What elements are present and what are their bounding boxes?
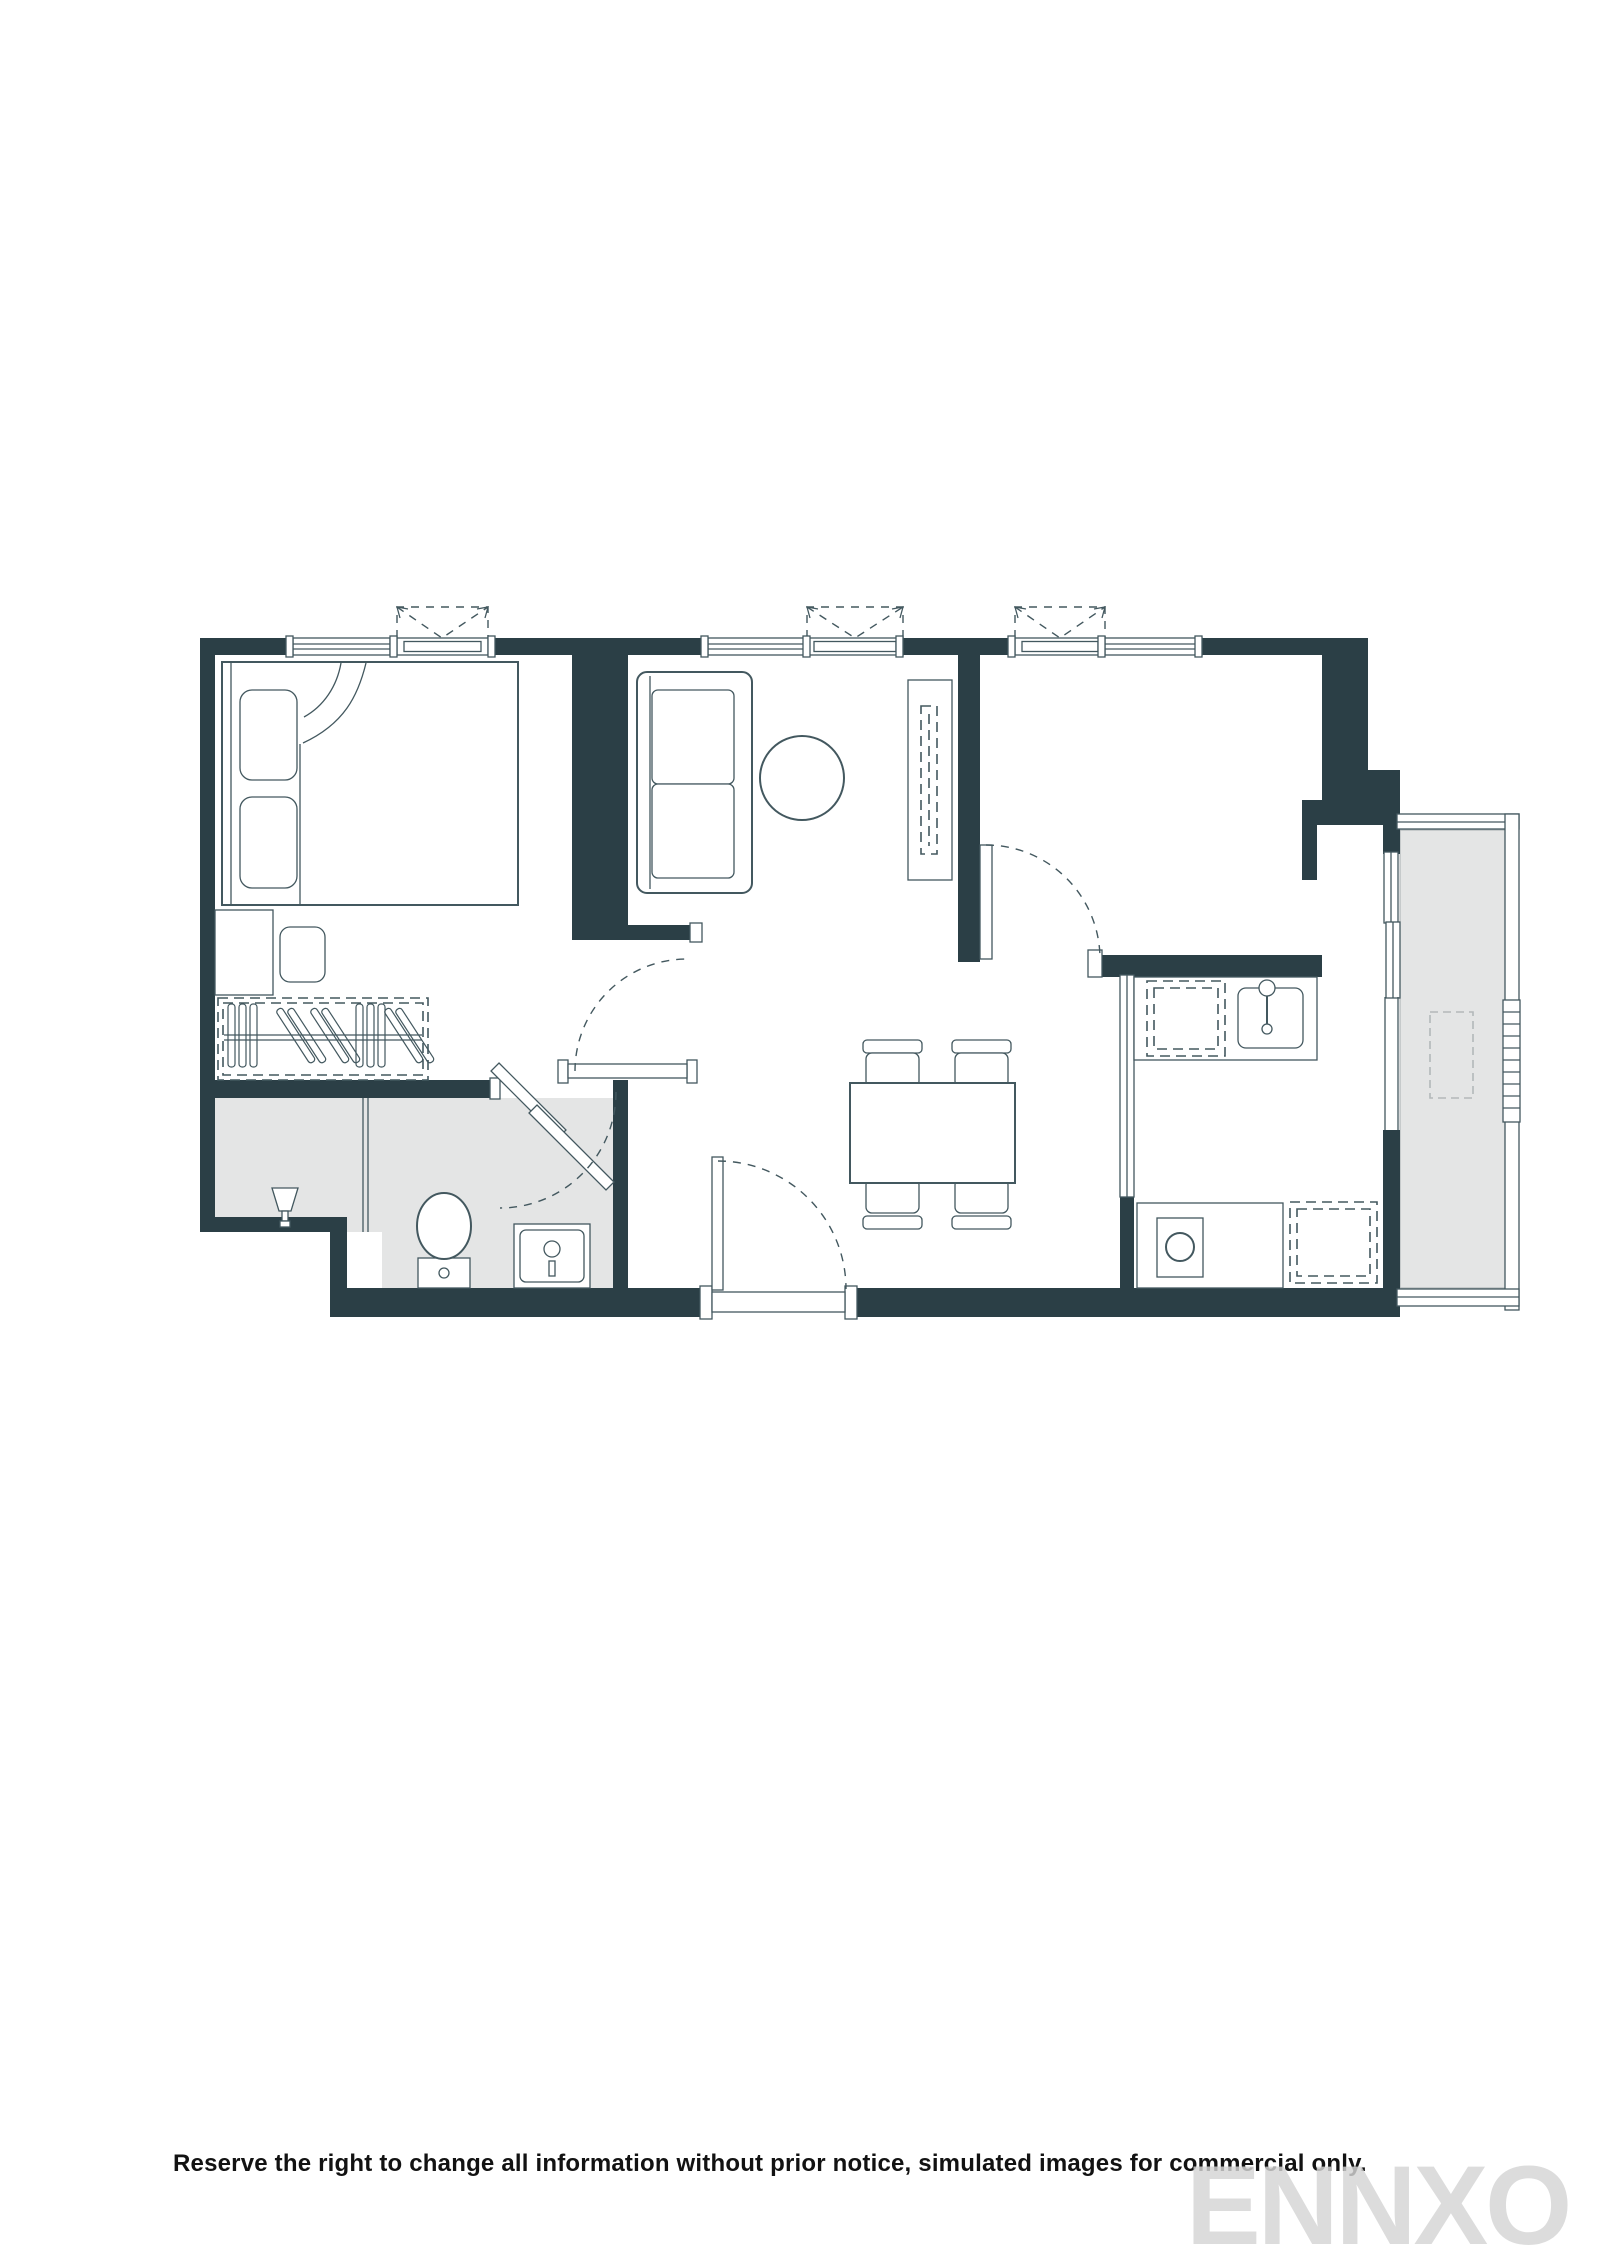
- window-opening-symbol: [1015, 607, 1105, 638]
- entry-hall: [700, 1157, 857, 1319]
- floorplan-page: ENNXO Reserve the right to change all in…: [0, 0, 1600, 2263]
- wall-bathroom-top: [215, 1080, 497, 1098]
- jamb: [701, 636, 708, 657]
- watermark: ENNXO: [1186, 2150, 1569, 2262]
- wall-segment: [488, 638, 708, 655]
- window-sash: [1022, 642, 1098, 652]
- wall-bottom-left: [330, 1288, 700, 1317]
- window-frame: [708, 638, 807, 655]
- door-threshold: [712, 1292, 845, 1312]
- toilet-tank: [418, 1258, 470, 1288]
- faucet-spout: [1262, 1024, 1272, 1034]
- windows: [286, 607, 1202, 657]
- faucet: [544, 1241, 560, 1257]
- faucet-handle: [549, 1261, 555, 1276]
- door-swing: [575, 959, 687, 1071]
- dining-chair: [952, 1179, 1011, 1229]
- wall-shower-bottom: [200, 1217, 347, 1232]
- chair-seat: [955, 1179, 1008, 1213]
- wall-segment: [1202, 638, 1322, 655]
- refrigerator-space: [1290, 1202, 1377, 1283]
- faucet: [1259, 980, 1275, 996]
- wardrobe-rail: [224, 1035, 422, 1040]
- door-jamb: [558, 1060, 568, 1083]
- jamb: [488, 636, 495, 657]
- sofa: [637, 672, 752, 893]
- dining-chair: [863, 1179, 922, 1229]
- window-opening-symbol: [397, 607, 488, 638]
- wall-living-bedroom2-divider: [958, 655, 980, 962]
- balcony-floor-slab: [1400, 830, 1505, 1288]
- door-jamb: [700, 1286, 712, 1319]
- chair-seat: [866, 1179, 919, 1213]
- kitchen-sink: [1238, 980, 1303, 1048]
- living-room: [637, 672, 952, 893]
- washing-machine: [1157, 1218, 1203, 1277]
- floorplan-drawing: [0, 0, 1600, 2263]
- double-bed: [222, 662, 518, 905]
- wall-kitchen-partition-stub: [1120, 1197, 1134, 1288]
- door-jamb: [687, 1060, 697, 1083]
- sliding-window: [1384, 852, 1400, 1130]
- door-swing: [718, 1161, 846, 1289]
- window-6: [1105, 638, 1202, 655]
- dining-table: [850, 1083, 1015, 1183]
- wall-bathroom-right: [613, 1080, 628, 1288]
- window-sash: [404, 642, 481, 652]
- window-2: [397, 607, 488, 655]
- side-table: [215, 910, 273, 995]
- pillow: [240, 690, 297, 780]
- bedroom-2: [980, 845, 1102, 977]
- toilet-bowl: [417, 1193, 471, 1259]
- wall-bottom-right: [845, 1288, 1400, 1317]
- balcony-floor: [1400, 830, 1505, 1288]
- jamb: [390, 636, 397, 657]
- chair-back: [863, 1216, 922, 1229]
- wall-balcony-beam: [1302, 800, 1400, 825]
- pillow: [240, 797, 297, 888]
- jamb: [286, 636, 293, 657]
- door-leaf: [712, 1157, 723, 1290]
- jamb: [1195, 636, 1202, 657]
- chair-back: [952, 1216, 1011, 1229]
- nightstand: [280, 927, 325, 982]
- door-jamb: [845, 1286, 857, 1319]
- tv-cabinet: [908, 680, 952, 880]
- wall-bedroom-living-divider: [572, 655, 628, 940]
- dining-chair: [863, 1040, 922, 1087]
- kitchen-glass-partition: [1120, 975, 1134, 1197]
- window-frame: [293, 638, 390, 655]
- coffee-table: [760, 736, 844, 820]
- window-opening-symbol: [807, 607, 903, 638]
- sliding-door-opening: [1385, 997, 1398, 1130]
- kitchen: [1120, 975, 1377, 1288]
- wall-left-exterior: [200, 638, 215, 1232]
- jamb: [1098, 636, 1105, 657]
- toilet: [417, 1193, 471, 1288]
- window-3: [708, 638, 807, 655]
- bathroom-sink: [514, 1224, 590, 1288]
- window-sash: [814, 642, 896, 652]
- window-5: [1015, 607, 1105, 655]
- sofa-cushion: [652, 690, 734, 784]
- jamb: [1008, 636, 1015, 657]
- jamb: [896, 636, 903, 657]
- wardrobe: [218, 998, 435, 1080]
- sofa-cushion: [652, 784, 734, 878]
- bedroom-1-door: [558, 959, 697, 1083]
- wall-kitchen-right-stub: [1302, 825, 1317, 880]
- window-frame: [1105, 638, 1202, 655]
- chair-back: [863, 1040, 922, 1053]
- main-entrance-door: [700, 1157, 857, 1319]
- ac-louver-grate: [1503, 1000, 1520, 1122]
- wall-balcony-divider-stub-bottom: [1383, 1130, 1400, 1288]
- dining-area: [850, 1040, 1015, 1229]
- chair-seat: [955, 1053, 1008, 1087]
- door-jamb: [490, 1078, 500, 1099]
- door-swing: [986, 845, 1100, 959]
- window-4: [807, 607, 903, 655]
- wall-kitchen-top: [1090, 955, 1322, 977]
- door-leaf: [568, 1064, 687, 1078]
- tv-unit: [908, 680, 952, 880]
- jamb: [803, 636, 810, 657]
- door-leaf: [980, 845, 992, 959]
- window-1: [293, 638, 390, 655]
- chair-back: [952, 1040, 1011, 1053]
- chair-seat: [866, 1053, 919, 1087]
- dining-chair: [952, 1040, 1011, 1087]
- wall-segment: [903, 638, 1015, 655]
- bedroom-2-door: [980, 845, 1102, 977]
- door-jamb: [1088, 950, 1102, 977]
- wall-jamb-notch: [690, 923, 702, 942]
- sink-basin: [1238, 988, 1303, 1048]
